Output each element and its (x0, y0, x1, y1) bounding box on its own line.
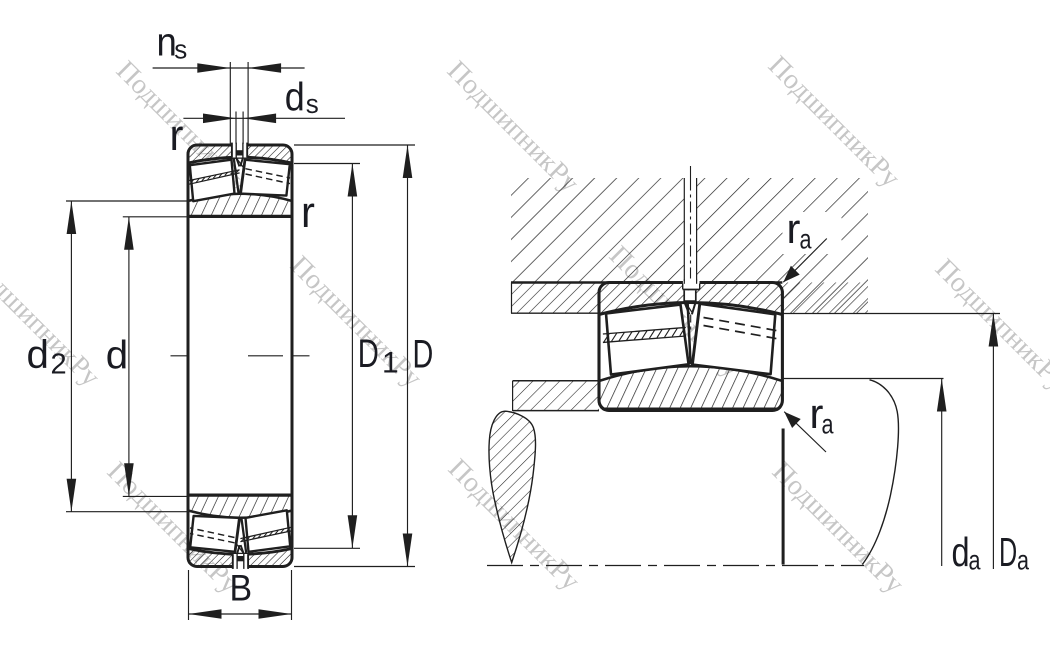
svg-text:D: D (999, 529, 1017, 575)
svg-text:s: s (174, 35, 187, 65)
svg-text:a: a (1017, 545, 1029, 576)
svg-text:d: d (27, 333, 49, 377)
svg-text:a: a (822, 409, 834, 440)
svg-text:a: a (800, 224, 812, 255)
svg-text:d: d (952, 529, 970, 575)
svg-text:r: r (301, 188, 315, 237)
svg-text:2: 2 (51, 349, 67, 381)
svg-text:s: s (306, 89, 319, 119)
svg-text:1: 1 (382, 347, 399, 380)
svg-text:r: r (787, 205, 801, 252)
svg-text:D: D (413, 332, 434, 376)
svg-text:r: r (170, 111, 184, 160)
svg-text:B: B (230, 567, 253, 608)
svg-text:d: d (106, 334, 128, 378)
svg-text:a: a (969, 545, 981, 576)
svg-text:d: d (285, 75, 305, 119)
svg-text:D: D (358, 332, 379, 376)
